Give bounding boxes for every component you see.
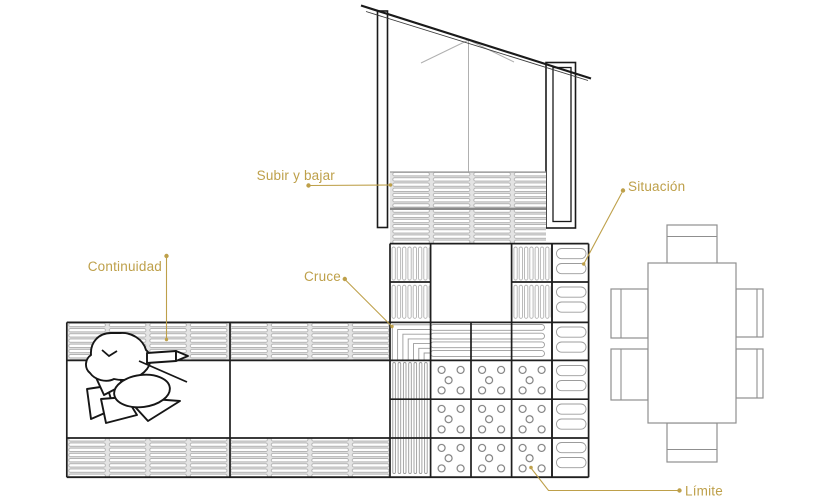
label-continuidad: Continuidad <box>88 259 162 274</box>
paving-diagram: Subir y bajar Situación Continuidad Cruc… <box>0 0 826 504</box>
chair <box>736 289 763 337</box>
leader-dot <box>306 183 310 187</box>
leader-dot <box>621 188 625 192</box>
label-subir-y-bajar: Subir y bajar <box>257 168 336 183</box>
floor-decking <box>390 172 546 244</box>
chair <box>667 225 717 265</box>
dot-paving-field <box>431 360 552 477</box>
ridge-marks <box>421 40 514 172</box>
vertical-runner-lines <box>393 363 427 474</box>
label-situacion: Situación <box>628 179 685 194</box>
table-top <box>648 263 736 423</box>
chair <box>611 289 648 338</box>
annotation-subir-y-bajar: Subir y bajar <box>257 168 393 188</box>
crossing-corner-pattern <box>392 325 430 360</box>
left-wall <box>378 11 388 228</box>
crossing-row-slats <box>431 325 545 357</box>
right-wall <box>546 63 576 229</box>
diagram-canvas: Subir y bajar Situación Continuidad Cruc… <box>0 0 826 504</box>
chair <box>611 349 648 400</box>
label-cruce: Cruce <box>304 269 341 284</box>
table-plan <box>611 225 763 462</box>
building-section <box>361 6 591 244</box>
leader-dot <box>164 254 168 258</box>
label-limite: Límite <box>685 484 723 499</box>
chair <box>667 423 717 462</box>
chair <box>736 349 763 398</box>
dog-head <box>86 333 150 381</box>
dog-stick <box>147 351 176 363</box>
band-bottom-slats <box>67 438 390 477</box>
annotation-cruce: Cruce <box>304 269 394 328</box>
